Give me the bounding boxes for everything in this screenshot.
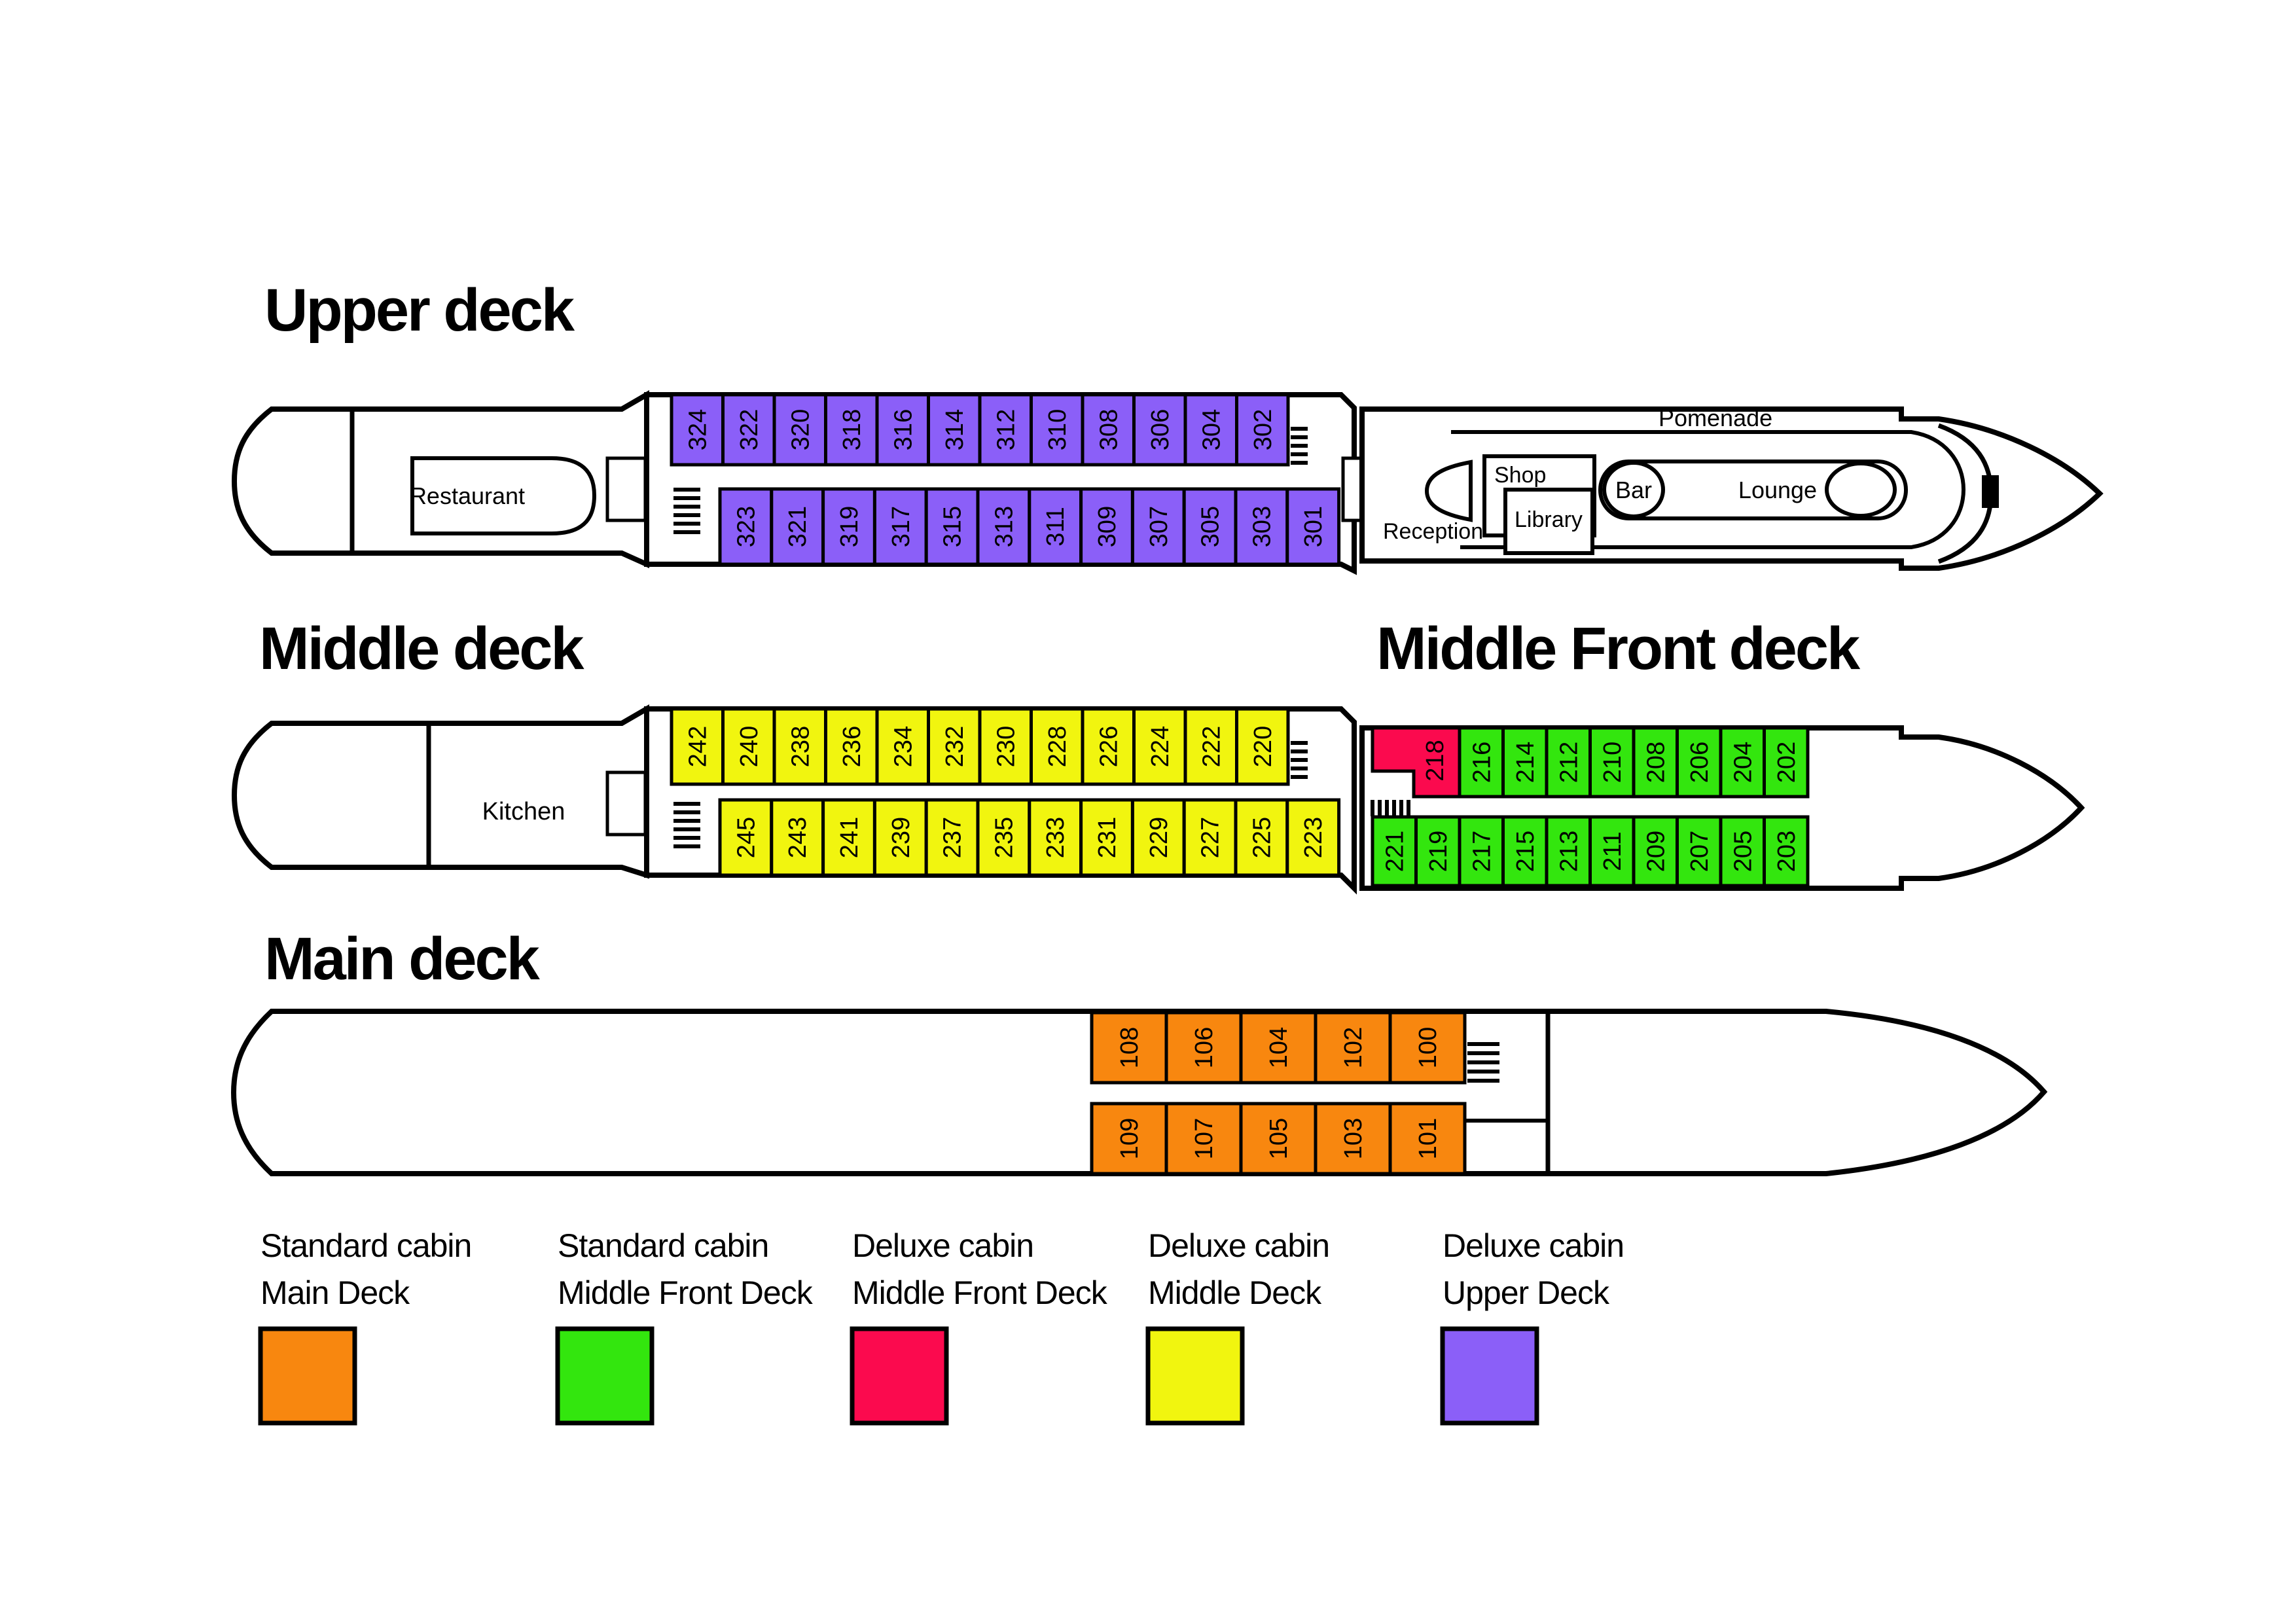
cabin-number: 318: [838, 409, 866, 450]
cabin-320[interactable]: 320: [774, 395, 826, 465]
cabin-226[interactable]: 226: [1083, 709, 1134, 784]
cabin-223[interactable]: 223: [1287, 800, 1339, 875]
legend-swatch-standard-main: [260, 1329, 355, 1423]
cabin-104[interactable]: 104: [1241, 1013, 1316, 1083]
cabin-108[interactable]: 108: [1092, 1013, 1166, 1083]
cabin-105[interactable]: 105: [1241, 1104, 1316, 1174]
cabin-number: 304: [1198, 409, 1225, 450]
lounge-label: Lounge: [1738, 477, 1817, 503]
cabin-number: 234: [889, 726, 917, 767]
cabin-309[interactable]: 309: [1081, 489, 1133, 564]
cabin-number: 324: [684, 409, 711, 450]
cabin-number: 216: [1468, 742, 1496, 783]
cabin-101[interactable]: 101: [1390, 1104, 1465, 1174]
cabin-number: 322: [736, 409, 763, 450]
cabin-225[interactable]: 225: [1236, 800, 1287, 875]
cabin-321[interactable]: 321: [772, 489, 823, 564]
library-label: Library: [1515, 507, 1583, 532]
cabin-205[interactable]: 205: [1721, 817, 1765, 886]
cabin-number: 312: [992, 409, 1020, 450]
cabin-238[interactable]: 238: [774, 709, 826, 784]
cabin-318[interactable]: 318: [826, 395, 878, 465]
reception-label: Reception: [1383, 519, 1483, 544]
cabin-number: 314: [941, 409, 969, 450]
cabin-number: 218: [1422, 740, 1449, 781]
cabin-number: 230: [992, 726, 1020, 767]
cabin-number: 217: [1468, 831, 1496, 872]
legend-swatch-deluxe-upper: [1443, 1329, 1537, 1423]
legend-label-line1: Deluxe cabin: [1148, 1227, 1329, 1264]
cabin-number: 104: [1265, 1027, 1293, 1068]
cabin-number: 242: [684, 726, 711, 767]
cabin-number: 101: [1414, 1118, 1442, 1159]
cabin-319[interactable]: 319: [823, 489, 875, 564]
cabin-number: 309: [1094, 506, 1121, 547]
cabin-222[interactable]: 222: [1185, 709, 1237, 784]
cabin-107[interactable]: 107: [1166, 1104, 1241, 1174]
shop-label: Shop: [1494, 463, 1546, 488]
main-deck-title: Main deck: [264, 926, 541, 992]
legend-swatch-standard-middle-front: [558, 1329, 652, 1423]
cabin-number: 307: [1145, 506, 1173, 547]
cabin-229[interactable]: 229: [1132, 800, 1184, 875]
cabin-number: 229: [1145, 817, 1173, 858]
cabin-number: 100: [1414, 1027, 1442, 1068]
cabin-219[interactable]: 219: [1416, 817, 1460, 886]
cabin-100[interactable]: 100: [1390, 1013, 1465, 1083]
cabin-number: 211: [1599, 831, 1626, 871]
cabin-214[interactable]: 214: [1503, 728, 1547, 797]
promenade-label: Pomenade: [1659, 405, 1772, 431]
legend-label-line1: Standard cabin: [260, 1227, 471, 1264]
middle-deck-stern-landing: [607, 772, 645, 835]
cabin-number: 241: [836, 817, 863, 858]
ship-deck-plan: Upper deck Restaurant Pomenade Reception…: [0, 0, 2296, 1624]
legend-label-line1: Deluxe cabin: [852, 1227, 1033, 1264]
cabin-232[interactable]: 232: [929, 709, 980, 784]
cabin-217[interactable]: 217: [1460, 817, 1503, 886]
cabin-208[interactable]: 208: [1634, 728, 1677, 797]
cabin-number: 208: [1642, 742, 1670, 783]
kitchen-label: Kitchen: [482, 798, 565, 825]
cabin-224[interactable]: 224: [1134, 709, 1186, 784]
cabin-323[interactable]: 323: [720, 489, 772, 564]
cabin-number: 213: [1555, 831, 1583, 872]
cabin-number: 225: [1248, 817, 1276, 858]
cabin-number: 315: [939, 506, 967, 547]
legend-label-line2: Main Deck: [260, 1274, 410, 1311]
cabin-231[interactable]: 231: [1081, 800, 1133, 875]
cabin-234[interactable]: 234: [877, 709, 929, 784]
cabin-301[interactable]: 301: [1287, 489, 1339, 564]
cabin-245[interactable]: 245: [720, 800, 772, 875]
cabin-number: 220: [1249, 726, 1277, 767]
cabin-number: 243: [784, 817, 812, 858]
cabin-number: 210: [1599, 742, 1626, 783]
cabin-number: 108: [1116, 1027, 1143, 1068]
bar-label: Bar: [1615, 477, 1652, 503]
cabin-number: 320: [787, 409, 814, 450]
cabin-number: 313: [990, 506, 1018, 547]
cabin-number: 223: [1300, 817, 1327, 858]
legend-item-deluxe-upper: Deluxe cabin Upper Deck: [1443, 1227, 1624, 1423]
cabin-number: 228: [1044, 726, 1071, 767]
cabin-number: 236: [838, 726, 866, 767]
legend-label-line2: Upper Deck: [1443, 1274, 1610, 1311]
upper-deck-title: Upper deck: [264, 277, 575, 344]
legend-label-line2: Middle Front Deck: [852, 1274, 1108, 1311]
legend-label-line2: Middle Deck: [1148, 1274, 1322, 1311]
cabin-240[interactable]: 240: [723, 709, 775, 784]
cabin-number: 305: [1197, 506, 1225, 547]
cabin-number: 240: [736, 726, 763, 767]
cabin-number: 310: [1044, 409, 1071, 450]
cabin-235[interactable]: 235: [978, 800, 1030, 875]
cabin-number: 317: [888, 506, 915, 547]
cabin-number: 238: [787, 726, 814, 767]
cabin-109[interactable]: 109: [1092, 1104, 1166, 1174]
deck-plan-page: Upper deck Restaurant Pomenade Reception…: [0, 0, 2296, 1624]
upper-deck-stern-landing: [607, 458, 645, 520]
cabin-242[interactable]: 242: [672, 709, 723, 784]
cabin-number: 102: [1340, 1027, 1367, 1068]
legend: Standard cabin Main Deck Standard cabin …: [260, 1227, 1624, 1423]
cabin-305[interactable]: 305: [1184, 489, 1236, 564]
cabin-206[interactable]: 206: [1677, 728, 1721, 797]
cabin-215[interactable]: 215: [1503, 817, 1547, 886]
cabin-308[interactable]: 308: [1083, 395, 1134, 465]
legend-swatch-deluxe-middle: [1148, 1329, 1242, 1423]
cabin-number: 203: [1773, 831, 1801, 872]
cabin-227[interactable]: 227: [1184, 800, 1236, 875]
cabin-number: 105: [1265, 1118, 1293, 1159]
middle-deck-stern-hull: [234, 709, 647, 875]
cabin-236[interactable]: 236: [826, 709, 878, 784]
cabin-317[interactable]: 317: [874, 489, 926, 564]
cabin-243[interactable]: 243: [772, 800, 823, 875]
cabin-316[interactable]: 316: [877, 395, 929, 465]
cabin-number: 202: [1773, 742, 1801, 783]
cabin-241[interactable]: 241: [823, 800, 875, 875]
cabin-230[interactable]: 230: [980, 709, 1031, 784]
cabin-207[interactable]: 207: [1677, 817, 1721, 886]
cabin-228[interactable]: 228: [1031, 709, 1083, 784]
cabin-number: 231: [1094, 817, 1121, 858]
cabin-number: 311: [1042, 507, 1069, 547]
lounge-table-icon: [1827, 463, 1895, 516]
cabin-number: 323: [732, 506, 760, 547]
legend-item-deluxe-middle-front: Deluxe cabin Middle Front Deck: [852, 1227, 1108, 1423]
cabin-number: 235: [990, 817, 1018, 858]
cabin-number: 227: [1197, 817, 1225, 858]
cabin-313[interactable]: 313: [978, 489, 1030, 564]
cabin-106[interactable]: 106: [1166, 1013, 1241, 1083]
legend-item-standard-main: Standard cabin Main Deck: [260, 1227, 471, 1423]
cabin-number: 303: [1248, 506, 1276, 547]
cabin-210[interactable]: 210: [1590, 728, 1634, 797]
cabin-239[interactable]: 239: [874, 800, 926, 875]
restaurant-label: Restaurant: [410, 482, 525, 509]
mast-icon: [1982, 475, 1999, 508]
cabin-number: 237: [939, 817, 967, 858]
cabin-number: 239: [888, 817, 915, 858]
cabin-216[interactable]: 216: [1460, 728, 1503, 797]
cabin-number: 232: [941, 726, 969, 767]
cabin-102[interactable]: 102: [1316, 1013, 1390, 1083]
cabin-233[interactable]: 233: [1030, 800, 1081, 875]
cabin-221[interactable]: 221: [1372, 817, 1416, 886]
cabin-202[interactable]: 202: [1765, 728, 1808, 797]
cabin-number: 206: [1686, 742, 1713, 783]
cabin-310[interactable]: 310: [1031, 395, 1083, 465]
cabin-304[interactable]: 304: [1185, 395, 1237, 465]
cabin-315[interactable]: 315: [926, 489, 978, 564]
cabin-number: 308: [1095, 409, 1122, 450]
cabin-204[interactable]: 204: [1721, 728, 1765, 797]
cabin-number: 301: [1300, 506, 1327, 547]
cabin-number: 302: [1249, 409, 1277, 450]
cabin-number: 215: [1512, 831, 1539, 872]
cabin-312[interactable]: 312: [980, 395, 1031, 465]
cabin-213[interactable]: 213: [1547, 817, 1590, 886]
cabin-number: 207: [1686, 831, 1713, 872]
cabin-211[interactable]: 211: [1590, 817, 1634, 886]
cabin-322[interactable]: 322: [723, 395, 775, 465]
middle-front-deck-title: Middle Front deck: [1376, 615, 1861, 682]
legend-item-deluxe-middle: Deluxe cabin Middle Deck: [1148, 1227, 1329, 1423]
cabin-number: 316: [889, 409, 917, 450]
cabin-212[interactable]: 212: [1547, 728, 1590, 797]
cabin-number: 109: [1116, 1118, 1143, 1159]
cabin-number: 221: [1381, 831, 1408, 872]
cabin-number: 245: [732, 817, 760, 858]
cabin-307[interactable]: 307: [1132, 489, 1184, 564]
legend-label-line2: Middle Front Deck: [558, 1274, 814, 1311]
cabin-number: 205: [1729, 831, 1757, 872]
middle-deck-title: Middle deck: [259, 615, 584, 682]
cabin-number: 219: [1425, 831, 1452, 872]
cabin-314[interactable]: 314: [929, 395, 980, 465]
cabin-number: 321: [784, 506, 812, 547]
cabin-311[interactable]: 311: [1030, 489, 1081, 564]
cabin-number: 224: [1147, 726, 1174, 767]
cabin-203[interactable]: 203: [1765, 817, 1808, 886]
cabin-303[interactable]: 303: [1236, 489, 1287, 564]
cabin-220[interactable]: 220: [1237, 709, 1289, 784]
legend-swatch-deluxe-middle-front: [852, 1329, 946, 1423]
cabin-number: 306: [1147, 409, 1174, 450]
legend-item-standard-middle-front: Standard cabin Middle Front Deck: [558, 1227, 814, 1423]
cabin-237[interactable]: 237: [926, 800, 978, 875]
cabin-306[interactable]: 306: [1134, 395, 1186, 465]
cabin-number: 209: [1642, 831, 1670, 872]
legend-label-line1: Standard cabin: [558, 1227, 768, 1264]
legend-label-line1: Deluxe cabin: [1443, 1227, 1624, 1264]
cabin-number: 103: [1340, 1118, 1367, 1159]
cabin-number: 106: [1191, 1027, 1218, 1068]
cabin-number: 319: [836, 506, 863, 547]
cabin-number: 233: [1042, 817, 1069, 858]
cabin-number: 204: [1729, 742, 1757, 783]
cabin-number: 212: [1555, 742, 1583, 783]
cabin-number: 107: [1191, 1118, 1218, 1159]
cabin-number: 222: [1198, 726, 1225, 767]
cabin-324[interactable]: 324: [672, 395, 723, 465]
cabin-103[interactable]: 103: [1316, 1104, 1390, 1174]
cabin-209[interactable]: 209: [1634, 817, 1677, 886]
cabin-302[interactable]: 302: [1237, 395, 1289, 465]
cabin-number: 214: [1512, 742, 1539, 783]
cabin-number: 226: [1095, 726, 1122, 767]
